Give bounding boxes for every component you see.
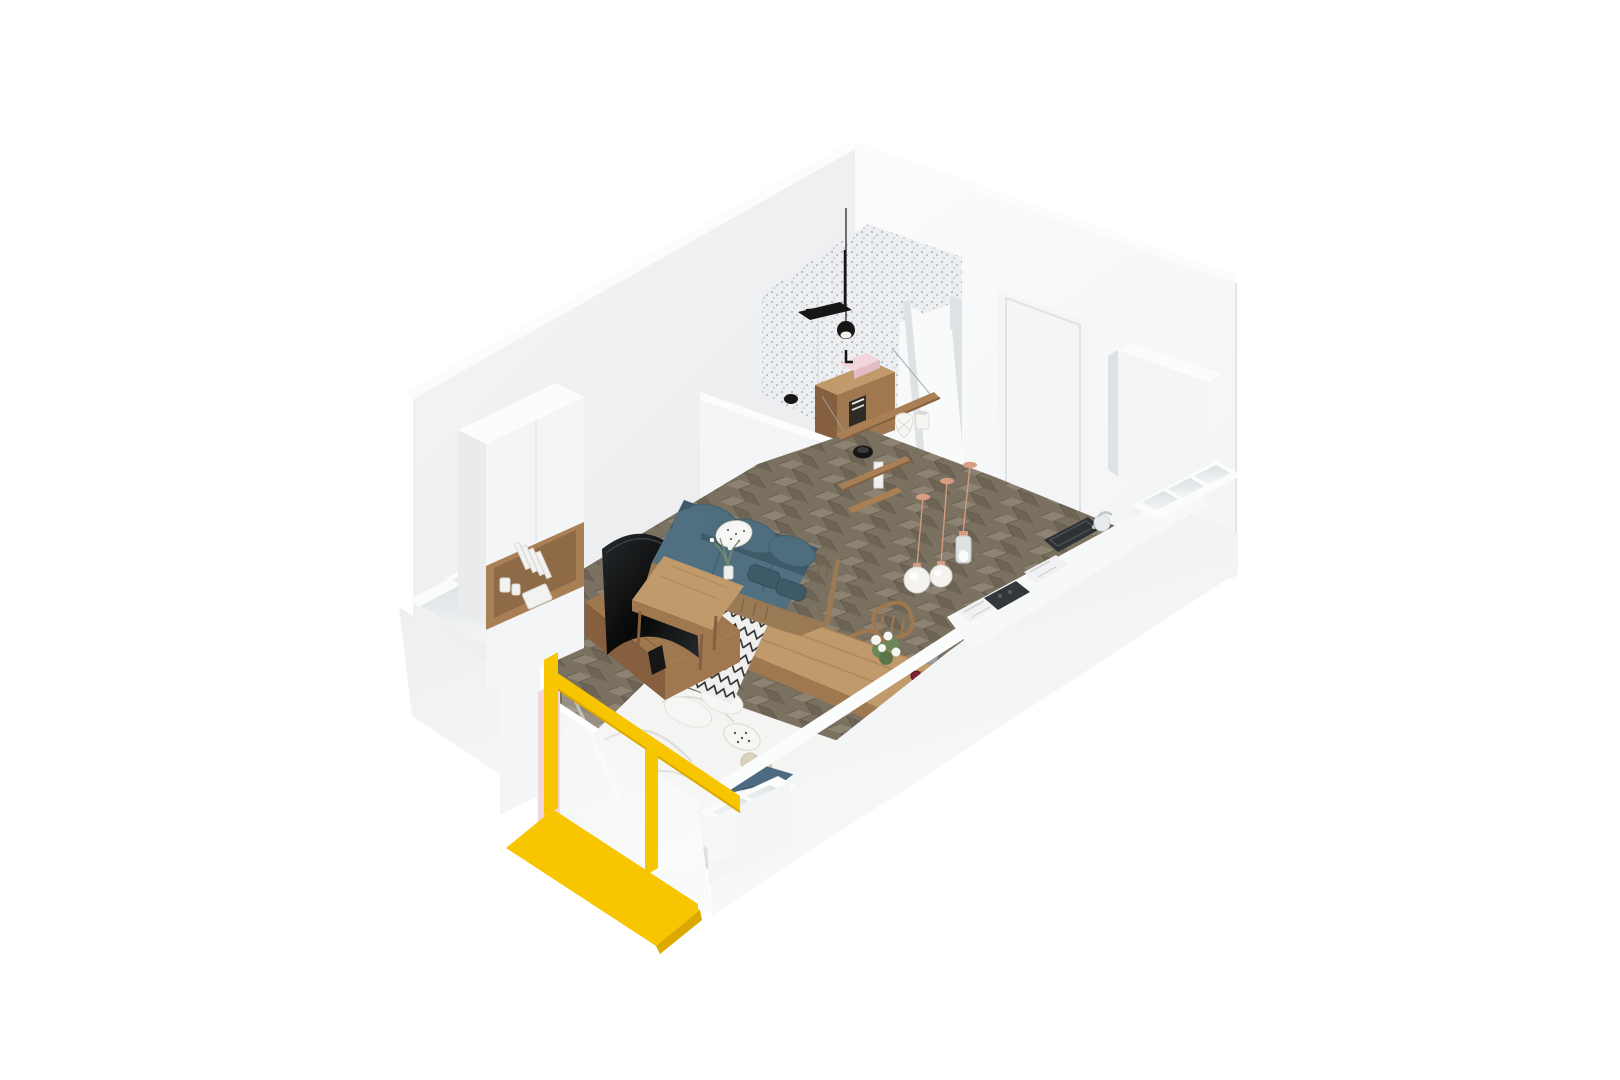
partition-mullion: [645, 742, 658, 876]
partition-left-post: [544, 652, 558, 816]
wardrobe-side: [458, 430, 486, 624]
apartment-scene: [0, 0, 1620, 1080]
black-watering-can: [784, 394, 798, 404]
ceiling-disc: [963, 462, 977, 468]
floor-plan-render: [0, 0, 1620, 1080]
cylinder-vase: [916, 411, 929, 429]
ceiling-disc: [916, 494, 930, 500]
ceiling-disc: [940, 478, 954, 484]
